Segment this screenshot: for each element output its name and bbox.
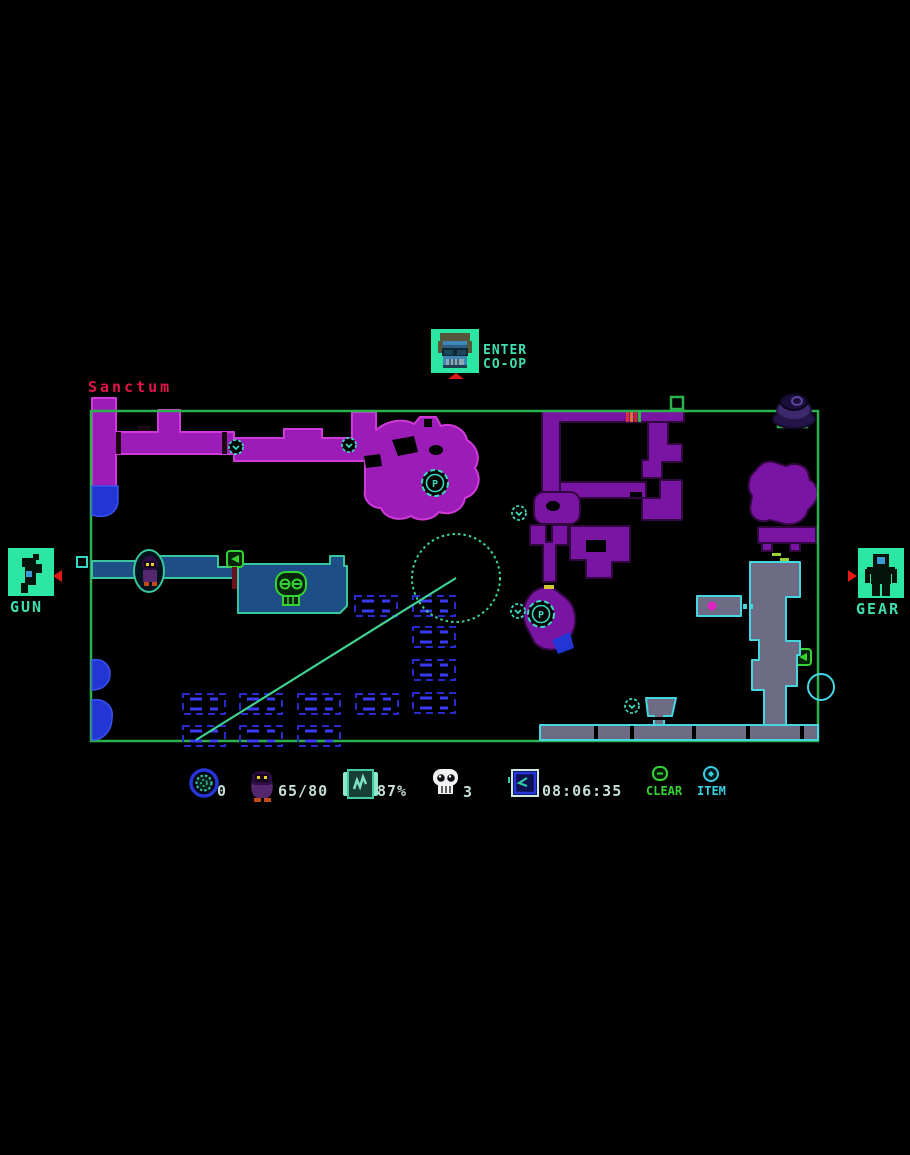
location-title: Sanctum [88,378,172,396]
blue-blobs [92,486,118,740]
up-arrow-icon [448,373,464,379]
pistol-icon [6,546,62,598]
pink-item-dot [708,602,717,611]
coop-portrait-icon [431,329,479,379]
clear-status-icon [651,766,669,782]
clear-status-label: CLEAR [646,784,682,798]
edge-circle-marker [808,674,834,700]
orb-icon [188,767,220,799]
p-marker: P [422,470,448,496]
blue-platforms [92,556,347,613]
coop-label-line1: ENTER [483,344,527,357]
skull-count-icon [428,767,463,798]
border-square-marker [671,397,683,409]
game-screen: P P ENTER CO-OP Sanctum [0,0,910,1155]
bomb-knob-icon [773,394,815,428]
right-arrow-icon [848,570,857,582]
left-arrow-icon [53,570,62,582]
loot-bird-icon [245,765,279,803]
weapon-slot-label: GUN [10,598,43,616]
orb-count: 0 [217,782,227,800]
gear-slot-label: GEAR [856,600,900,618]
player-marker [134,550,164,592]
slate-structures [540,562,818,740]
green-dashes [772,553,789,561]
clock-icon [508,768,540,798]
item-status-label: ITEM [697,784,726,798]
p-marker: P [528,601,554,627]
robot-suit-icon [846,546,906,600]
map-scroll-icon [342,768,379,800]
item-status-icon [702,766,720,782]
purple-caves-left [92,398,479,519]
loot-count: 65/80 [278,782,328,800]
p-marker-label: P [538,610,544,621]
p-marker-label: P [432,479,438,490]
minimap: P P [0,0,910,1155]
skull-count: 3 [463,783,473,801]
yellow-dash [544,585,554,589]
outer-square-marker [77,557,87,567]
map-percent: 87% [377,782,407,800]
cyan-dashes [743,604,753,609]
coop-label-line2: CO-OP [483,358,527,371]
mission-time: 08:06:35 [542,782,622,800]
